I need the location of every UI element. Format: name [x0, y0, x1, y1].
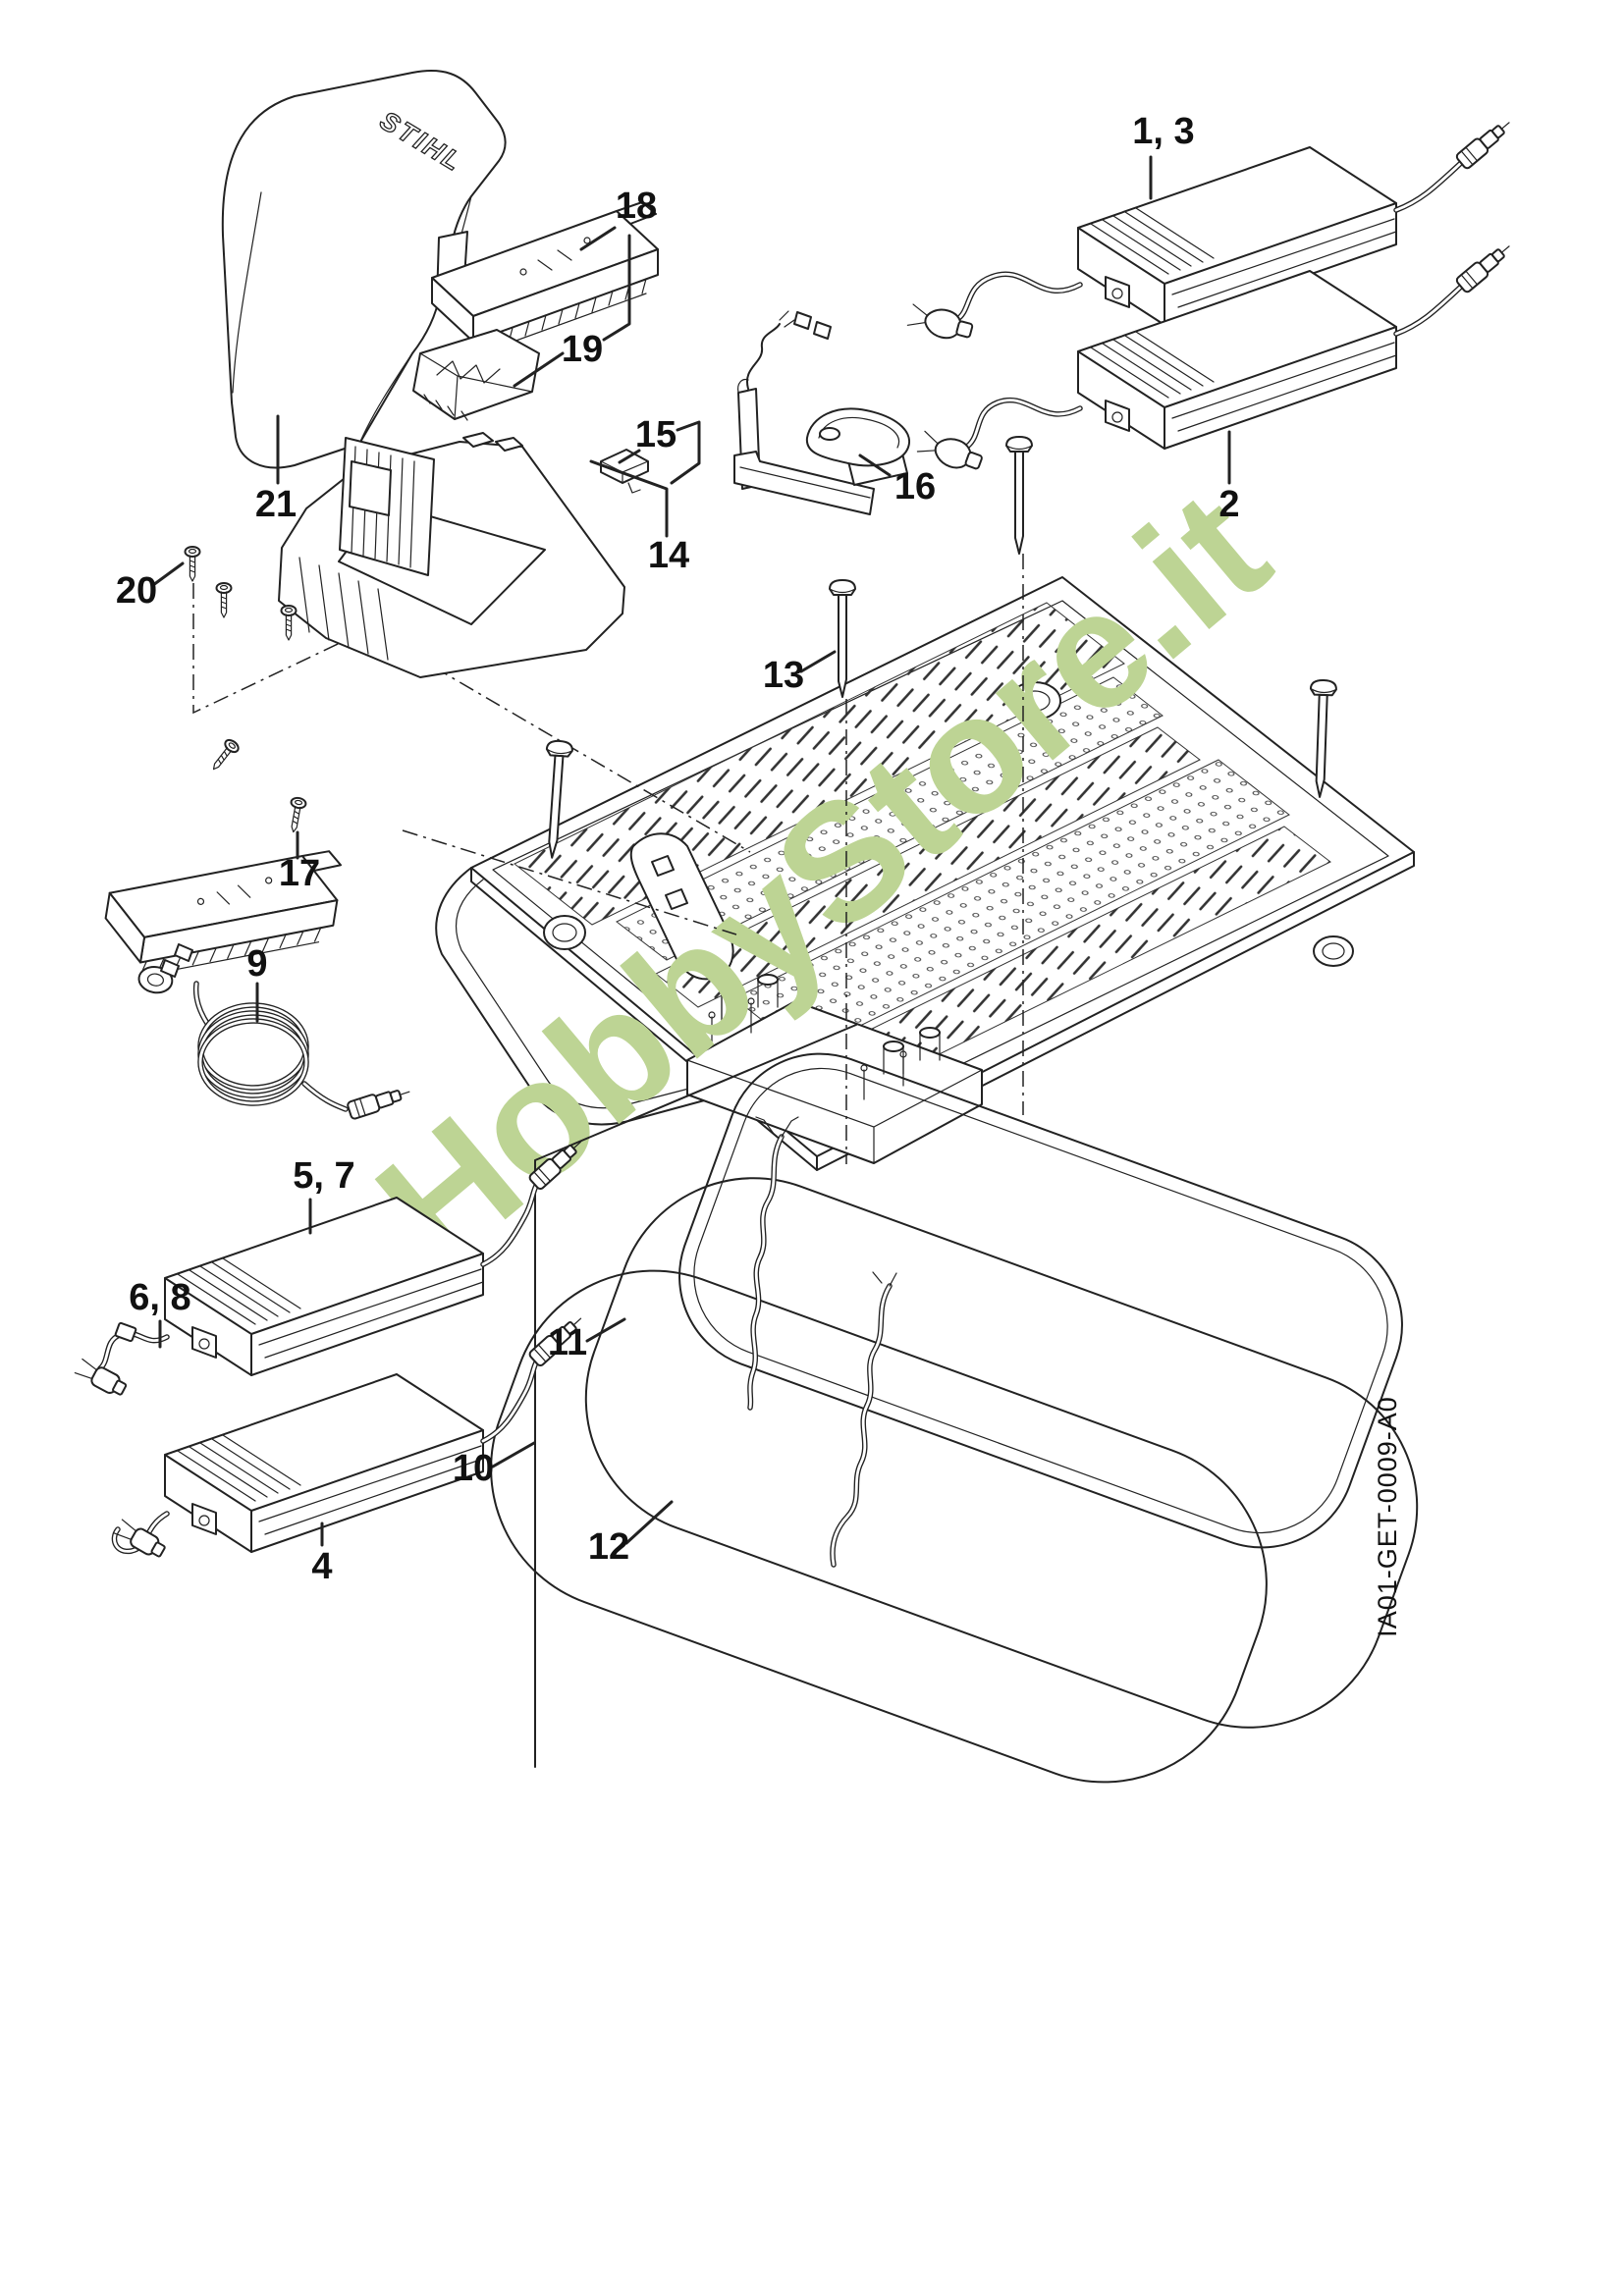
- exploded-view-drawing: HobbyStore.it STIHL: [0, 0, 1624, 2296]
- callout-14: 14: [591, 461, 689, 576]
- power-supply-4: [113, 1311, 586, 1560]
- clip-15: [601, 450, 648, 493]
- dock-wire-11: [750, 1117, 798, 1408]
- callout-label: 10: [453, 1448, 494, 1489]
- callout-4: 4: [311, 1523, 332, 1587]
- screw: [186, 547, 200, 581]
- callout-1-3: 1, 3: [1132, 111, 1194, 198]
- fixing-stake: [1006, 437, 1032, 554]
- handle-assembly-16: [734, 311, 909, 514]
- callout-12: 12: [588, 1502, 672, 1568]
- callout-13: 13: [763, 652, 835, 696]
- callout-9: 9: [246, 943, 267, 1021]
- fixing-stake: [830, 580, 855, 697]
- callout-label: 12: [588, 1526, 629, 1568]
- callout-label: 1, 3: [1132, 111, 1194, 152]
- callout-17: 17: [279, 832, 320, 894]
- callout-label: 19: [562, 329, 603, 370]
- callout-label: 11: [548, 1322, 587, 1363]
- mains-plug-us: [113, 1518, 167, 1560]
- screw: [282, 606, 297, 640]
- callout-label: 20: [116, 570, 157, 612]
- charge-module-left: [95, 819, 345, 1019]
- callout-label: 6, 8: [129, 1277, 190, 1318]
- dock-housing-14: [279, 433, 624, 677]
- apron-oval-hole: [544, 916, 585, 949]
- cable-coil-9: [161, 944, 412, 1120]
- dock-wire-12: [833, 1272, 896, 1565]
- callout-label: 18: [616, 186, 657, 227]
- drawing-code: IA01-GET-0009-A0: [1373, 1396, 1402, 1637]
- callout-label: 16: [894, 466, 936, 507]
- screw-17: [286, 797, 306, 833]
- callout-11: 11: [548, 1319, 624, 1363]
- callout-2: 2: [1218, 432, 1239, 525]
- plate-recess-hole: [1314, 936, 1353, 966]
- callout-label: 14: [648, 535, 689, 576]
- callout-label: 9: [246, 943, 267, 985]
- screw: [208, 737, 241, 774]
- callout-label: 13: [763, 655, 804, 696]
- psu-output-connector: [1455, 116, 1515, 170]
- boundary-wire-loop-10: [547, 1140, 1455, 1766]
- callout-10: 10: [453, 1443, 534, 1489]
- callout-20: 20: [116, 563, 183, 612]
- callout-label: 5, 7: [293, 1155, 354, 1197]
- handle-button: [820, 428, 839, 440]
- psu-output-connector: [1455, 240, 1515, 294]
- callout-label: 15: [635, 414, 677, 455]
- screw: [217, 583, 232, 617]
- callout-label: 17: [279, 853, 320, 894]
- callout-label: 21: [255, 484, 297, 525]
- callout-label: 2: [1218, 484, 1239, 525]
- callout-label: 4: [311, 1546, 332, 1587]
- diagram-page: HobbyStore.it STIHL: [0, 0, 1624, 2296]
- contact-block-19: [413, 330, 539, 420]
